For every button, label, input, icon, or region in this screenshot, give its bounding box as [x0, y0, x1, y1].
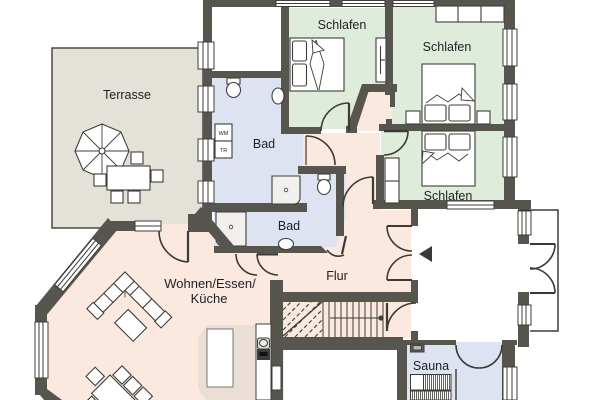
- svg-text:Bad: Bad: [253, 137, 275, 151]
- svg-text:Bad: Bad: [278, 219, 300, 233]
- svg-text:Sauna: Sauna: [413, 359, 449, 373]
- svg-text:Wohnen/Essen/: Wohnen/Essen/: [164, 276, 256, 291]
- svg-text:Schlafen: Schlafen: [318, 18, 367, 32]
- svg-text:Küche: Küche: [191, 291, 228, 306]
- svg-text:Schlafen: Schlafen: [423, 40, 472, 54]
- svg-text:Schlafen: Schlafen: [424, 189, 473, 203]
- svg-text:Terrasse: Terrasse: [103, 88, 151, 102]
- svg-text:Flur: Flur: [326, 269, 348, 283]
- svg-text:WM: WM: [219, 131, 229, 137]
- svg-text:TR: TR: [220, 148, 227, 154]
